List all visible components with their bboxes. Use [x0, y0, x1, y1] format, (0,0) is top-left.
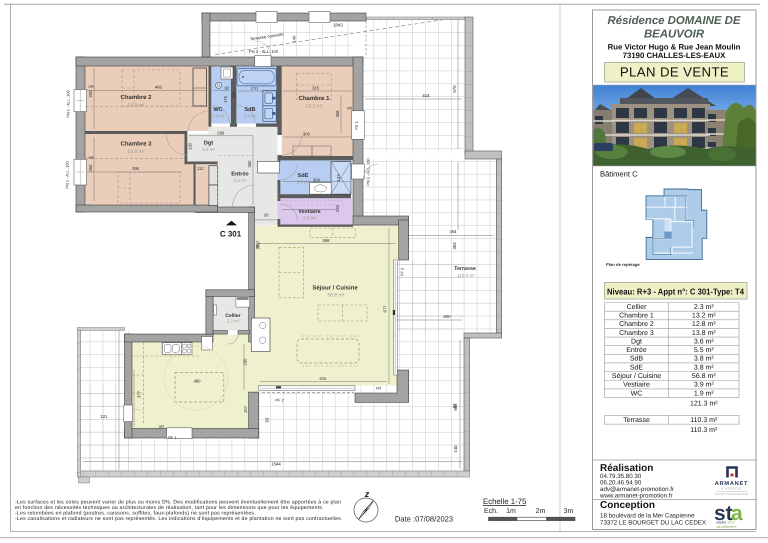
svg-text:5.5 m²: 5.5 m²	[694, 347, 715, 354]
svg-text:3.8 m²: 3.8 m²	[296, 180, 309, 185]
svg-text:230: 230	[243, 358, 248, 366]
svg-text:13.2 m²: 13.2 m²	[692, 313, 716, 320]
svg-text:5.5 m²: 5.5 m²	[233, 178, 246, 183]
svg-text:480: 480	[194, 379, 202, 384]
svg-text:PF 1: PF 1	[168, 435, 176, 440]
svg-text:Chambre 3: Chambre 3	[120, 141, 152, 148]
svg-text:3.8 m²: 3.8 m²	[243, 114, 256, 119]
svg-text:364: 364	[449, 229, 457, 234]
svg-text:1043: 1043	[333, 23, 343, 28]
svg-text:1.9 m²: 1.9 m²	[211, 114, 224, 119]
svg-text:73372 LE BOURGET DU LAC CEDEX: 73372 LE BOURGET DU LAC CEDEX	[600, 520, 706, 527]
svg-text:298: 298	[132, 166, 140, 171]
svg-text:305: 305	[303, 131, 311, 136]
svg-text:PF 3: PF 3	[400, 268, 405, 276]
svg-text:WC: WC	[631, 390, 643, 397]
svg-text:Dgt: Dgt	[204, 141, 213, 147]
svg-text:PE 1: PE 1	[354, 121, 359, 129]
svg-text:140: 140	[453, 445, 458, 453]
svg-text:2.3 m²: 2.3 m²	[227, 319, 240, 324]
svg-text:110.3 m²: 110.3 m²	[690, 427, 718, 434]
svg-text:Terrasse: Terrasse	[454, 266, 476, 272]
svg-text:VR: VR	[88, 84, 94, 89]
svg-text:289: 289	[217, 130, 225, 135]
svg-text:1m: 1m	[506, 508, 516, 515]
svg-text:www.armanet-promotion.fr: www.armanet-promotion.fr	[599, 493, 673, 500]
svg-text:Chambre 2: Chambre 2	[120, 94, 152, 101]
svg-text:Niveau: R+3 - Appt n°: C 301-: Niveau: R+3 - Appt n°: C 301-Type: T4	[607, 287, 744, 297]
svg-text:493: 493	[155, 85, 163, 90]
svg-text:12.8 m²: 12.8 m²	[128, 103, 145, 109]
svg-text:z: z	[364, 489, 370, 499]
svg-text:VR: VR	[88, 155, 94, 160]
svg-text:Echelle 1-75: Echelle 1-75	[483, 497, 527, 506]
svg-text:414: 414	[422, 93, 430, 98]
svg-text:& ASSOCIÉ: & ASSOCIÉ	[721, 487, 742, 491]
svg-text:PN 2 - ALL .100: PN 2 - ALL .100	[366, 158, 371, 186]
svg-text:92: 92	[225, 86, 230, 91]
svg-text:Séjour / Cuisine: Séjour / Cuisine	[612, 372, 662, 380]
svg-text:92: 92	[264, 213, 269, 218]
svg-text:3m: 3m	[564, 508, 574, 515]
svg-text:225: 225	[232, 91, 237, 99]
svg-text:170: 170	[251, 86, 259, 91]
svg-text:PLAN DE VENTE: PLAN DE VENTE	[620, 65, 729, 80]
svg-text:140: 140	[292, 35, 297, 42]
svg-text:63: 63	[265, 417, 270, 422]
svg-text:VR: VR	[159, 424, 165, 429]
svg-text:PN 1 - ALL .100: PN 1 - ALL .100	[66, 90, 71, 118]
svg-text:112: 112	[197, 166, 204, 171]
svg-text:Cellier: Cellier	[627, 303, 648, 311]
svg-text:2m: 2m	[536, 508, 546, 515]
svg-text:-Les canalisations et radiateu: -Les canalisations et radiateurs ne sont…	[15, 516, 343, 522]
svg-text:13.8 m²: 13.8 m²	[692, 330, 716, 337]
svg-text:PF 2: PF 2	[275, 398, 283, 403]
svg-text:82: 82	[452, 403, 457, 408]
svg-text:Bâtiment C: Bâtiment C	[600, 170, 638, 179]
svg-text:56.8 m²: 56.8 m²	[692, 373, 716, 380]
svg-text:3.6 m²: 3.6 m²	[694, 338, 715, 345]
svg-text:400: 400	[443, 314, 451, 319]
svg-text:Chambre 1: Chambre 1	[298, 95, 330, 102]
svg-text:Vestiaire: Vestiaire	[623, 381, 650, 389]
svg-text:VR: VR	[347, 106, 353, 111]
svg-text:677: 677	[383, 305, 388, 313]
svg-text:73190 CHALLES-LES-EAUX: 73190 CHALLES-LES-EAUX	[623, 51, 726, 60]
svg-text:18 boulevard de la Mer Caspien: 18 boulevard de la Mer Caspienne	[600, 513, 695, 520]
svg-text:WC: WC	[213, 107, 222, 113]
svg-text:13.8 m²: 13.8 m²	[128, 149, 145, 155]
svg-text:SdB: SdB	[244, 106, 255, 113]
svg-text:PN 2 - ALL .100: PN 2 - ALL .100	[249, 49, 279, 54]
svg-text:C 301: C 301	[220, 230, 242, 239]
svg-text:Chambre 1: Chambre 1	[619, 312, 654, 320]
svg-text:175: 175	[223, 95, 228, 103]
svg-text:SdE: SdE	[298, 172, 309, 179]
svg-text:398: 398	[323, 238, 331, 243]
svg-text:121.3 m²: 121.3 m²	[690, 401, 718, 408]
svg-text:Entrée: Entrée	[626, 346, 647, 354]
svg-text:Résidence DOMAINE DE: Résidence DOMAINE DE	[608, 15, 741, 27]
svg-text:3.8 m²: 3.8 m²	[694, 364, 715, 371]
svg-text:2.3 m²: 2.3 m²	[694, 304, 715, 311]
svg-text:Dgt: Dgt	[631, 338, 642, 345]
svg-text:360: 360	[247, 160, 252, 168]
svg-text:3.9 m²: 3.9 m²	[303, 216, 316, 221]
svg-text:1544: 1544	[271, 462, 281, 467]
svg-text:PN 1 - ALL .100: PN 1 - ALL .100	[65, 161, 70, 189]
svg-text:Ech.: Ech.	[484, 507, 498, 515]
svg-text:615: 615	[320, 376, 328, 381]
svg-text:377: 377	[137, 390, 142, 398]
svg-text:315: 315	[312, 86, 320, 91]
svg-text:Vestiaire: Vestiaire	[298, 209, 320, 215]
svg-text:110.3 m²: 110.3 m²	[457, 273, 475, 278]
svg-text:133: 133	[336, 174, 341, 182]
svg-text:157: 157	[243, 405, 248, 413]
svg-text:PROMOTION IMMOBILIÈRE: PROMOTION IMMOBILIÈRE	[715, 492, 749, 496]
svg-text:Conception: Conception	[600, 500, 655, 511]
svg-text:Date :07/08/2023: Date :07/08/2023	[395, 515, 453, 524]
svg-text:1.9 m²: 1.9 m²	[694, 390, 715, 397]
svg-text::architectes: :architectes	[716, 524, 736, 529]
svg-text:200: 200	[88, 90, 93, 98]
svg-text:SdE: SdE	[630, 363, 644, 371]
svg-text:368: 368	[335, 110, 340, 118]
svg-text:3.6 m²: 3.6 m²	[202, 147, 215, 152]
svg-text:Chambre 2: Chambre 2	[619, 320, 654, 328]
svg-text:121: 121	[100, 414, 108, 419]
svg-text:Plan de repérage: Plan de repérage	[606, 262, 640, 267]
svg-text:12.8 m²: 12.8 m²	[692, 321, 716, 328]
svg-text:Entrée: Entrée	[231, 171, 248, 178]
svg-text:3.8 m²: 3.8 m²	[694, 356, 715, 363]
svg-text:110.3 m²: 110.3 m²	[690, 417, 718, 424]
svg-text:233: 233	[335, 204, 340, 212]
svg-text:575: 575	[452, 85, 457, 93]
svg-text:PE 2: PE 2	[256, 241, 260, 249]
svg-text:SdB: SdB	[630, 355, 644, 363]
svg-text:260: 260	[88, 164, 93, 172]
svg-text:56.8 m²: 56.8 m²	[328, 293, 345, 299]
svg-text:303: 303	[452, 242, 457, 250]
svg-text:BEAUVOIR: BEAUVOIR	[644, 29, 705, 41]
svg-text:VR: VR	[376, 386, 382, 391]
svg-text:130: 130	[187, 142, 192, 150]
svg-text:13.2 m²: 13.2 m²	[306, 104, 323, 110]
svg-text:309: 309	[313, 178, 321, 183]
svg-text:3.9 m²: 3.9 m²	[694, 382, 715, 389]
svg-text:Terrasse: Terrasse	[623, 417, 650, 424]
svg-text:Séjour / Cuisine: Séjour / Cuisine	[312, 285, 358, 292]
svg-text:Chambre 3: Chambre 3	[619, 329, 654, 337]
